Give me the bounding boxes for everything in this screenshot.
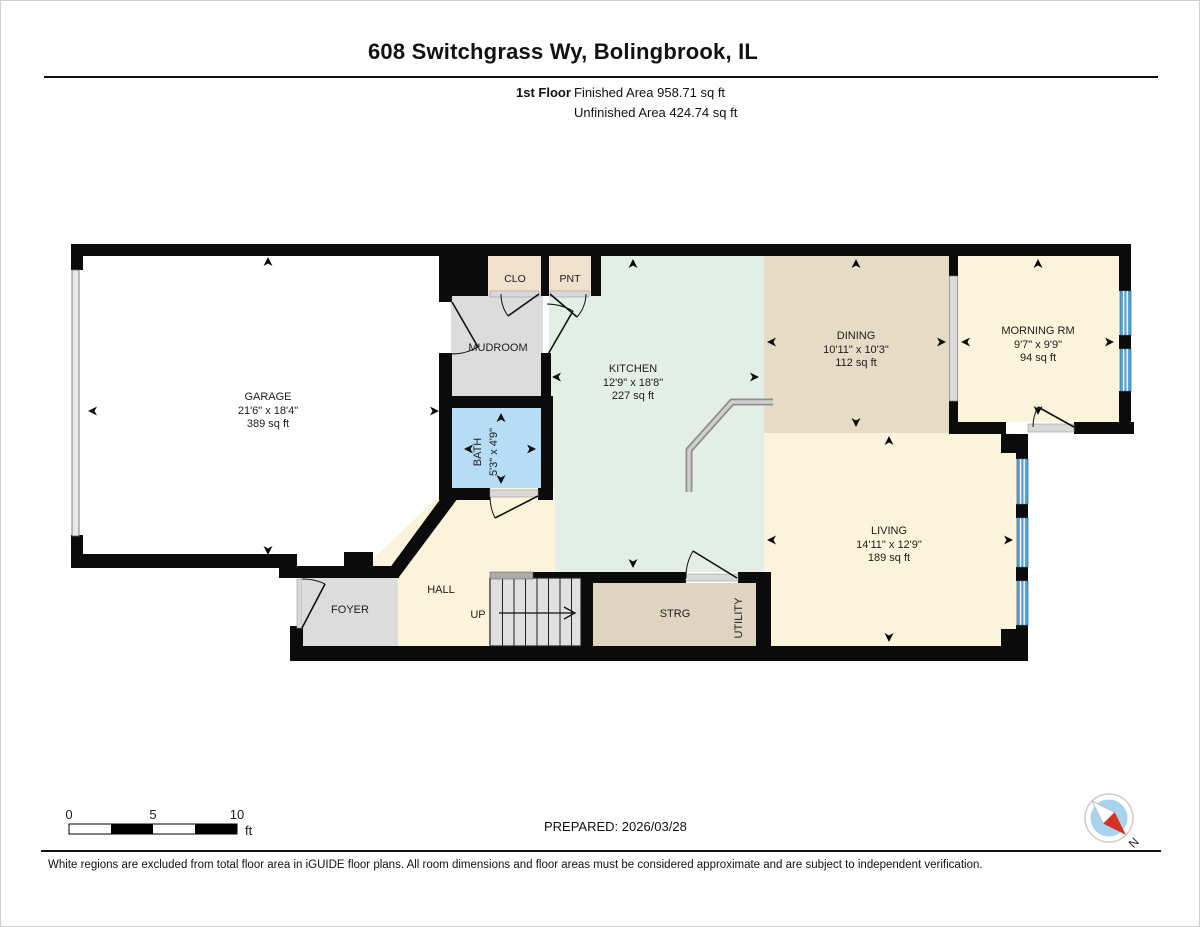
hall-label: HALL [427, 584, 455, 596]
bath-dims: 5'3" x 4'9" [488, 428, 500, 476]
kitchen-label: KITCHEN [609, 363, 657, 375]
garage-label: GARAGE [244, 391, 291, 403]
kitchen-floor [549, 293, 764, 572]
compass: N [1085, 794, 1144, 853]
footer-divider [41, 850, 1161, 852]
stair-handrail [490, 572, 533, 579]
dining-dims: 10'11" x 10'3" [823, 344, 889, 356]
morning-room-label: MORNING RM [1001, 325, 1074, 337]
scale-tick-0: 0 [65, 807, 72, 822]
kitchen-dims: 12'9" x 18'8" [603, 377, 663, 389]
living-label: LIVING [871, 525, 907, 537]
dining-morning-opening [950, 276, 958, 401]
room-floors [83, 256, 1119, 646]
bath-label: BATH [472, 438, 484, 467]
scale-unit: ft [245, 823, 253, 838]
morning-room-dims: 9'7" x 9'9" [1014, 339, 1062, 351]
dining-area: 112 sq ft [835, 357, 876, 369]
garage-dims: 21'6" x 18'4" [238, 405, 298, 417]
stairs-up-label: UP [470, 609, 485, 621]
garage-door [72, 270, 79, 536]
kitchen-area: 227 sq ft [612, 390, 654, 402]
floorplan-page: 608 Switchgrass Wy, Bolingbrook, IL 1st … [0, 0, 1200, 927]
living-window-1 [1017, 459, 1028, 504]
dining-label: DINING [837, 330, 876, 342]
mudroom-label: MUDROOM [468, 342, 527, 354]
floorplan-drawing: GARAGE 21'6" x 18'4" 389 sq ft CLO PNT M… [1, 1, 1200, 927]
garage-area: 389 sq ft [247, 418, 289, 430]
footer-disclaimer: White regions are excluded from total fl… [48, 859, 1158, 871]
kitchen-floor-top [601, 256, 764, 296]
living-window-2 [1017, 518, 1028, 567]
compass-north-label: N [1126, 835, 1142, 851]
storage-label: STRG [660, 608, 691, 620]
utility-label: UTILITY [733, 597, 745, 639]
scale-tick-10: 10 [230, 807, 244, 822]
prepared-date: PREPARED: 2026/03/28 [544, 819, 687, 834]
scale-bar: 0 5 10 ft [65, 807, 252, 838]
living-area: 189 sq ft [868, 552, 910, 564]
living-window-3 [1017, 581, 1028, 625]
foyer-label: FOYER [331, 604, 369, 616]
staircase [490, 572, 581, 646]
living-dims: 14'11" x 12'9" [856, 539, 922, 551]
closet-label: CLO [504, 273, 526, 285]
pantry-label: PNT [560, 273, 582, 285]
morning-window-1 [1120, 291, 1131, 335]
scale-tick-5: 5 [149, 807, 156, 822]
morning-window-2 [1120, 349, 1131, 391]
morning-room-area: 94 sq ft [1020, 352, 1056, 364]
